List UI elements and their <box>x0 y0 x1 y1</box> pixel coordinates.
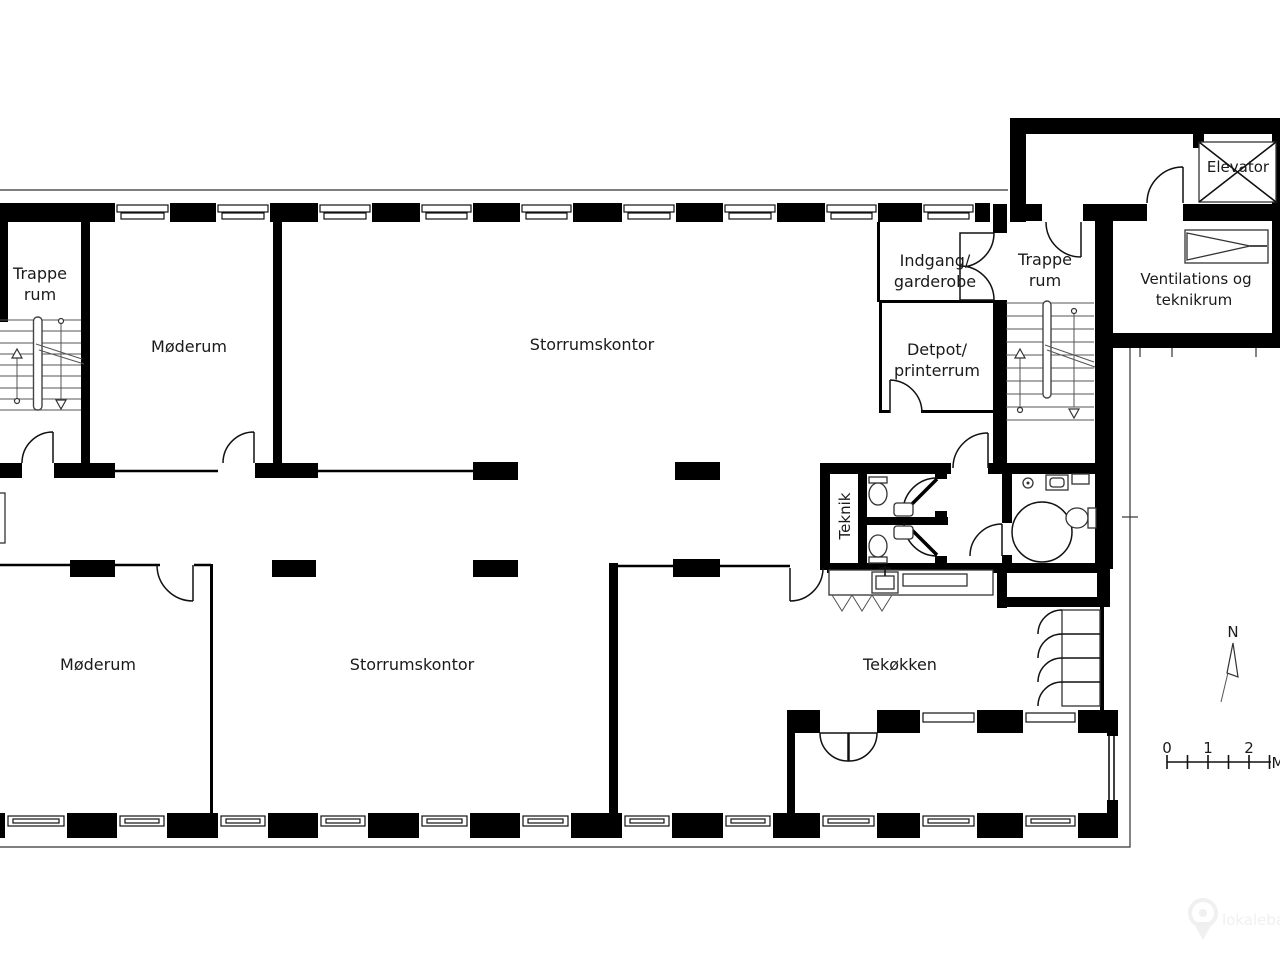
door-arc <box>890 380 922 413</box>
hc-toilet-fixtures <box>1012 474 1096 562</box>
north-arrow-icon <box>1221 643 1238 702</box>
staircase-left <box>0 317 84 410</box>
stair-down-arrow <box>1069 309 1079 419</box>
door-arc <box>953 433 988 468</box>
windows-north <box>115 203 975 222</box>
room-label-moderum-top: Møderum <box>151 337 227 356</box>
room-label-indgang-2: garderobe <box>894 272 976 291</box>
scale-tick-0: 0 <box>1162 739 1172 757</box>
room-label-tekokken: Tekøkken <box>862 655 937 674</box>
room-label-trappe-right-2: rum <box>1029 271 1061 290</box>
floor-plan: Trappe rum Møderum Storrumskontor Indgan… <box>0 0 1280 960</box>
wall-recess <box>0 493 5 543</box>
floor-plan-canvas: Trappe rum Møderum Storrumskontor Indgan… <box>0 0 1280 960</box>
door-arc <box>970 524 1002 556</box>
room-label-trappe-left-2: rum <box>24 285 56 304</box>
shower-icon-dot <box>1027 482 1030 485</box>
room-label-storrumskontor-top: Storrumskontor <box>530 335 655 354</box>
room-label-detpot-1: Detpot/ <box>907 340 968 359</box>
door-arc <box>790 568 823 601</box>
wc-icon <box>1066 508 1088 528</box>
door-arc <box>820 733 877 761</box>
watermark-text: lokalebasen <box>1222 911 1280 929</box>
door-arc <box>1147 167 1183 203</box>
room-label-indgang-1: Indgang/ <box>900 251 971 270</box>
turning-circle <box>1012 502 1072 562</box>
shelf-icon <box>1072 474 1089 484</box>
room-label-trappe-right-1: Trappe <box>1017 250 1072 269</box>
room-label-ventilation-2: teknikrum <box>1156 291 1232 309</box>
room-label-detpot-2: printerrum <box>894 361 980 380</box>
interior-walls <box>0 222 1113 814</box>
room-label-ventilation-1: Ventilations og <box>1140 270 1251 288</box>
scale-tick-1: 1 <box>1203 739 1213 757</box>
north-label: N <box>1227 623 1238 641</box>
columns <box>70 462 720 577</box>
watermark-logo <box>1190 900 1216 940</box>
room-label-moderum-bottom: Møderum <box>60 655 136 674</box>
ventilation-fan-icon <box>1185 230 1268 263</box>
stair-down-arrow <box>56 319 66 410</box>
scale-bar <box>1167 755 1271 769</box>
room-label-elevator: Elevator <box>1207 158 1270 176</box>
door-arc <box>22 432 53 463</box>
staircase-right <box>1006 301 1095 420</box>
door-arc <box>223 432 254 463</box>
scale-tick-2: 2 <box>1244 739 1254 757</box>
kitchen-counter <box>829 566 993 611</box>
scale-unit: M <box>1272 754 1280 772</box>
room-label-storrumskontor-bottom: Storrumskontor <box>350 655 475 674</box>
cabinets <box>1038 610 1100 706</box>
door-arc <box>157 565 193 601</box>
room-label-trappe-left-1: Trappe <box>12 264 67 283</box>
room-label-teknik: Teknik <box>836 492 854 540</box>
